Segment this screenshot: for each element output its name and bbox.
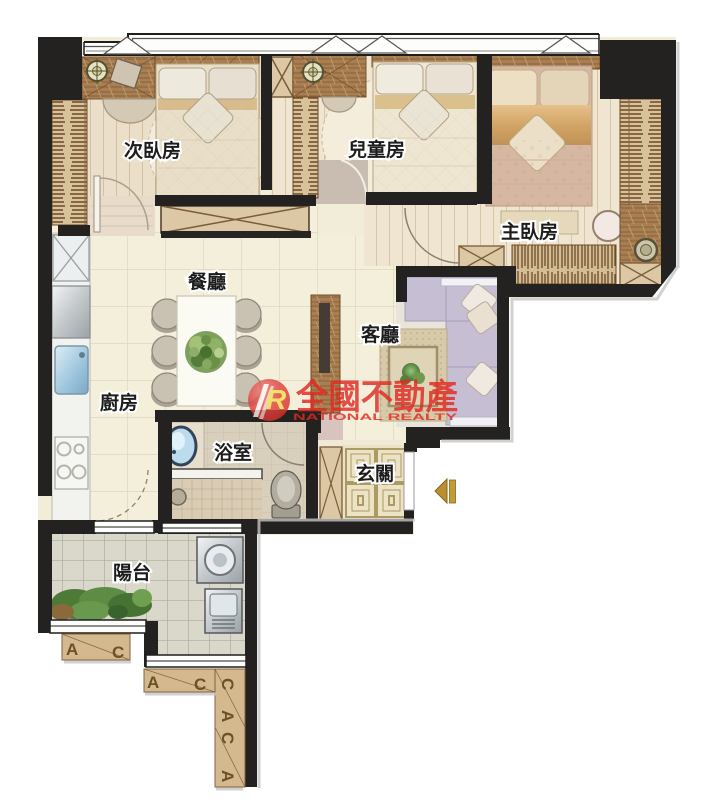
svg-text:R: R — [266, 384, 287, 415]
svg-text:C: C — [218, 678, 237, 690]
svg-text:A: A — [218, 770, 237, 782]
svg-text:全國不動產: 全國不動產 — [295, 377, 458, 417]
svg-text:廚房: 廚房 — [100, 391, 138, 414]
svg-text:主臥房: 主臥房 — [501, 220, 558, 243]
svg-text:次臥房: 次臥房 — [124, 139, 181, 162]
svg-text:C: C — [194, 675, 206, 694]
svg-text:A: A — [66, 640, 78, 659]
svg-text:客廳: 客廳 — [361, 323, 399, 346]
svg-text:A: A — [147, 673, 159, 692]
svg-text:A: A — [218, 710, 237, 722]
svg-text:陽台: 陽台 — [113, 561, 151, 584]
svg-text:玄關: 玄關 — [356, 462, 394, 485]
svg-text:C: C — [218, 732, 237, 744]
svg-text:C: C — [112, 643, 124, 662]
svg-text:兒童房: 兒童房 — [348, 138, 405, 161]
svg-text:餐廳: 餐廳 — [188, 270, 226, 293]
svg-text:NATIONAL REALTY: NATIONAL REALTY — [293, 412, 458, 423]
svg-text:浴室: 浴室 — [214, 441, 252, 464]
